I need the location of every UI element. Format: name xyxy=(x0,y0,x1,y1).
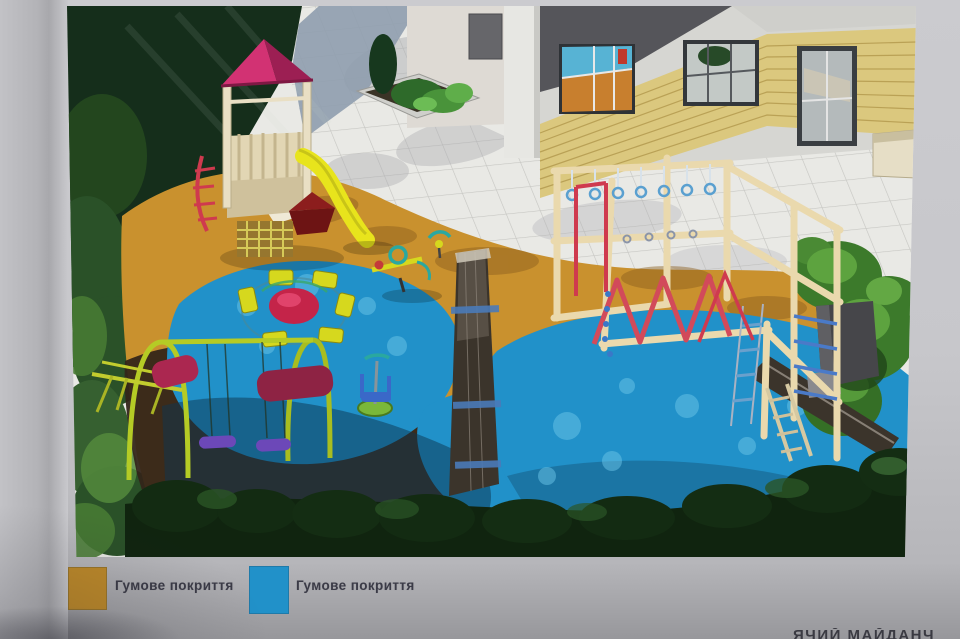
page-title-cut-off: ЯЧИЙ МАЙДАНЧ xyxy=(793,628,960,639)
photographed-booklet-page: { "photo": { "page_color": "#c7c7cb", "b… xyxy=(0,0,960,639)
glass-door xyxy=(797,46,857,146)
window-center xyxy=(683,40,759,106)
page-edge-shadow xyxy=(0,600,300,639)
building-door xyxy=(469,14,502,59)
window-reflection-playground xyxy=(559,44,635,114)
playground-3d-render xyxy=(67,6,916,557)
legend-label-orange: Гумове покриття xyxy=(115,578,234,593)
render-scene xyxy=(67,6,916,557)
legend-label-blue: Гумове покриття xyxy=(296,578,415,593)
right-planter-box xyxy=(873,130,916,178)
tower-lattice xyxy=(237,221,293,257)
page-fold-seam xyxy=(0,0,68,639)
